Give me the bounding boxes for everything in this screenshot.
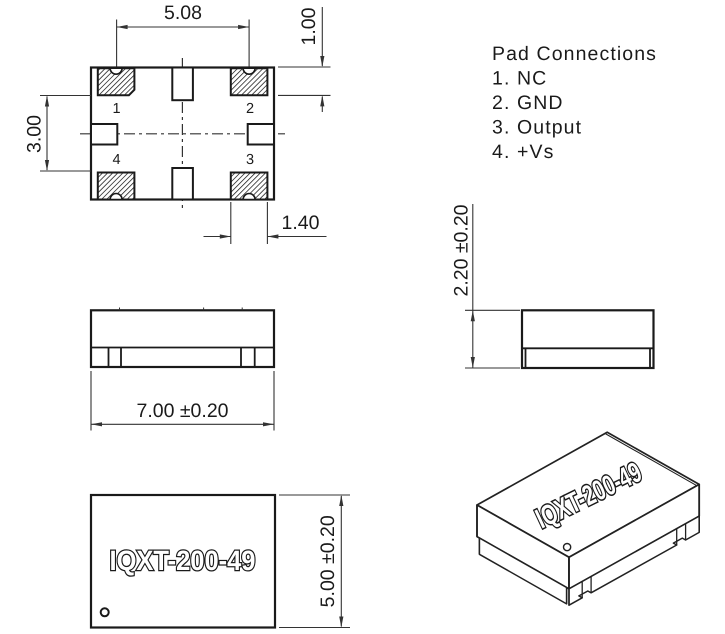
svg-text:3. Output: 3. Output xyxy=(492,117,582,139)
svg-text:1.00: 1.00 xyxy=(298,7,320,45)
svg-text:1: 1 xyxy=(112,101,120,117)
svg-text:IQXT-200-49: IQXT-200-49 xyxy=(110,545,256,576)
svg-text:2. GND: 2. GND xyxy=(492,92,564,114)
svg-text:1.40: 1.40 xyxy=(282,212,320,234)
svg-text:2.20 ±0.20: 2.20 ±0.20 xyxy=(451,204,473,296)
svg-text:4. +Vs: 4. +Vs xyxy=(492,141,554,163)
svg-text:2: 2 xyxy=(246,101,254,117)
svg-text:3.00: 3.00 xyxy=(24,115,46,153)
svg-text:5.08: 5.08 xyxy=(164,2,202,24)
svg-text:Pad Connections: Pad Connections xyxy=(492,43,657,65)
svg-text:7.00 ±0.20: 7.00 ±0.20 xyxy=(136,400,228,422)
svg-text:3: 3 xyxy=(246,152,254,168)
svg-text:5.00 ±0.20: 5.00 ±0.20 xyxy=(317,515,339,607)
svg-text:1. NC: 1. NC xyxy=(492,68,547,90)
svg-text:4: 4 xyxy=(112,152,120,168)
